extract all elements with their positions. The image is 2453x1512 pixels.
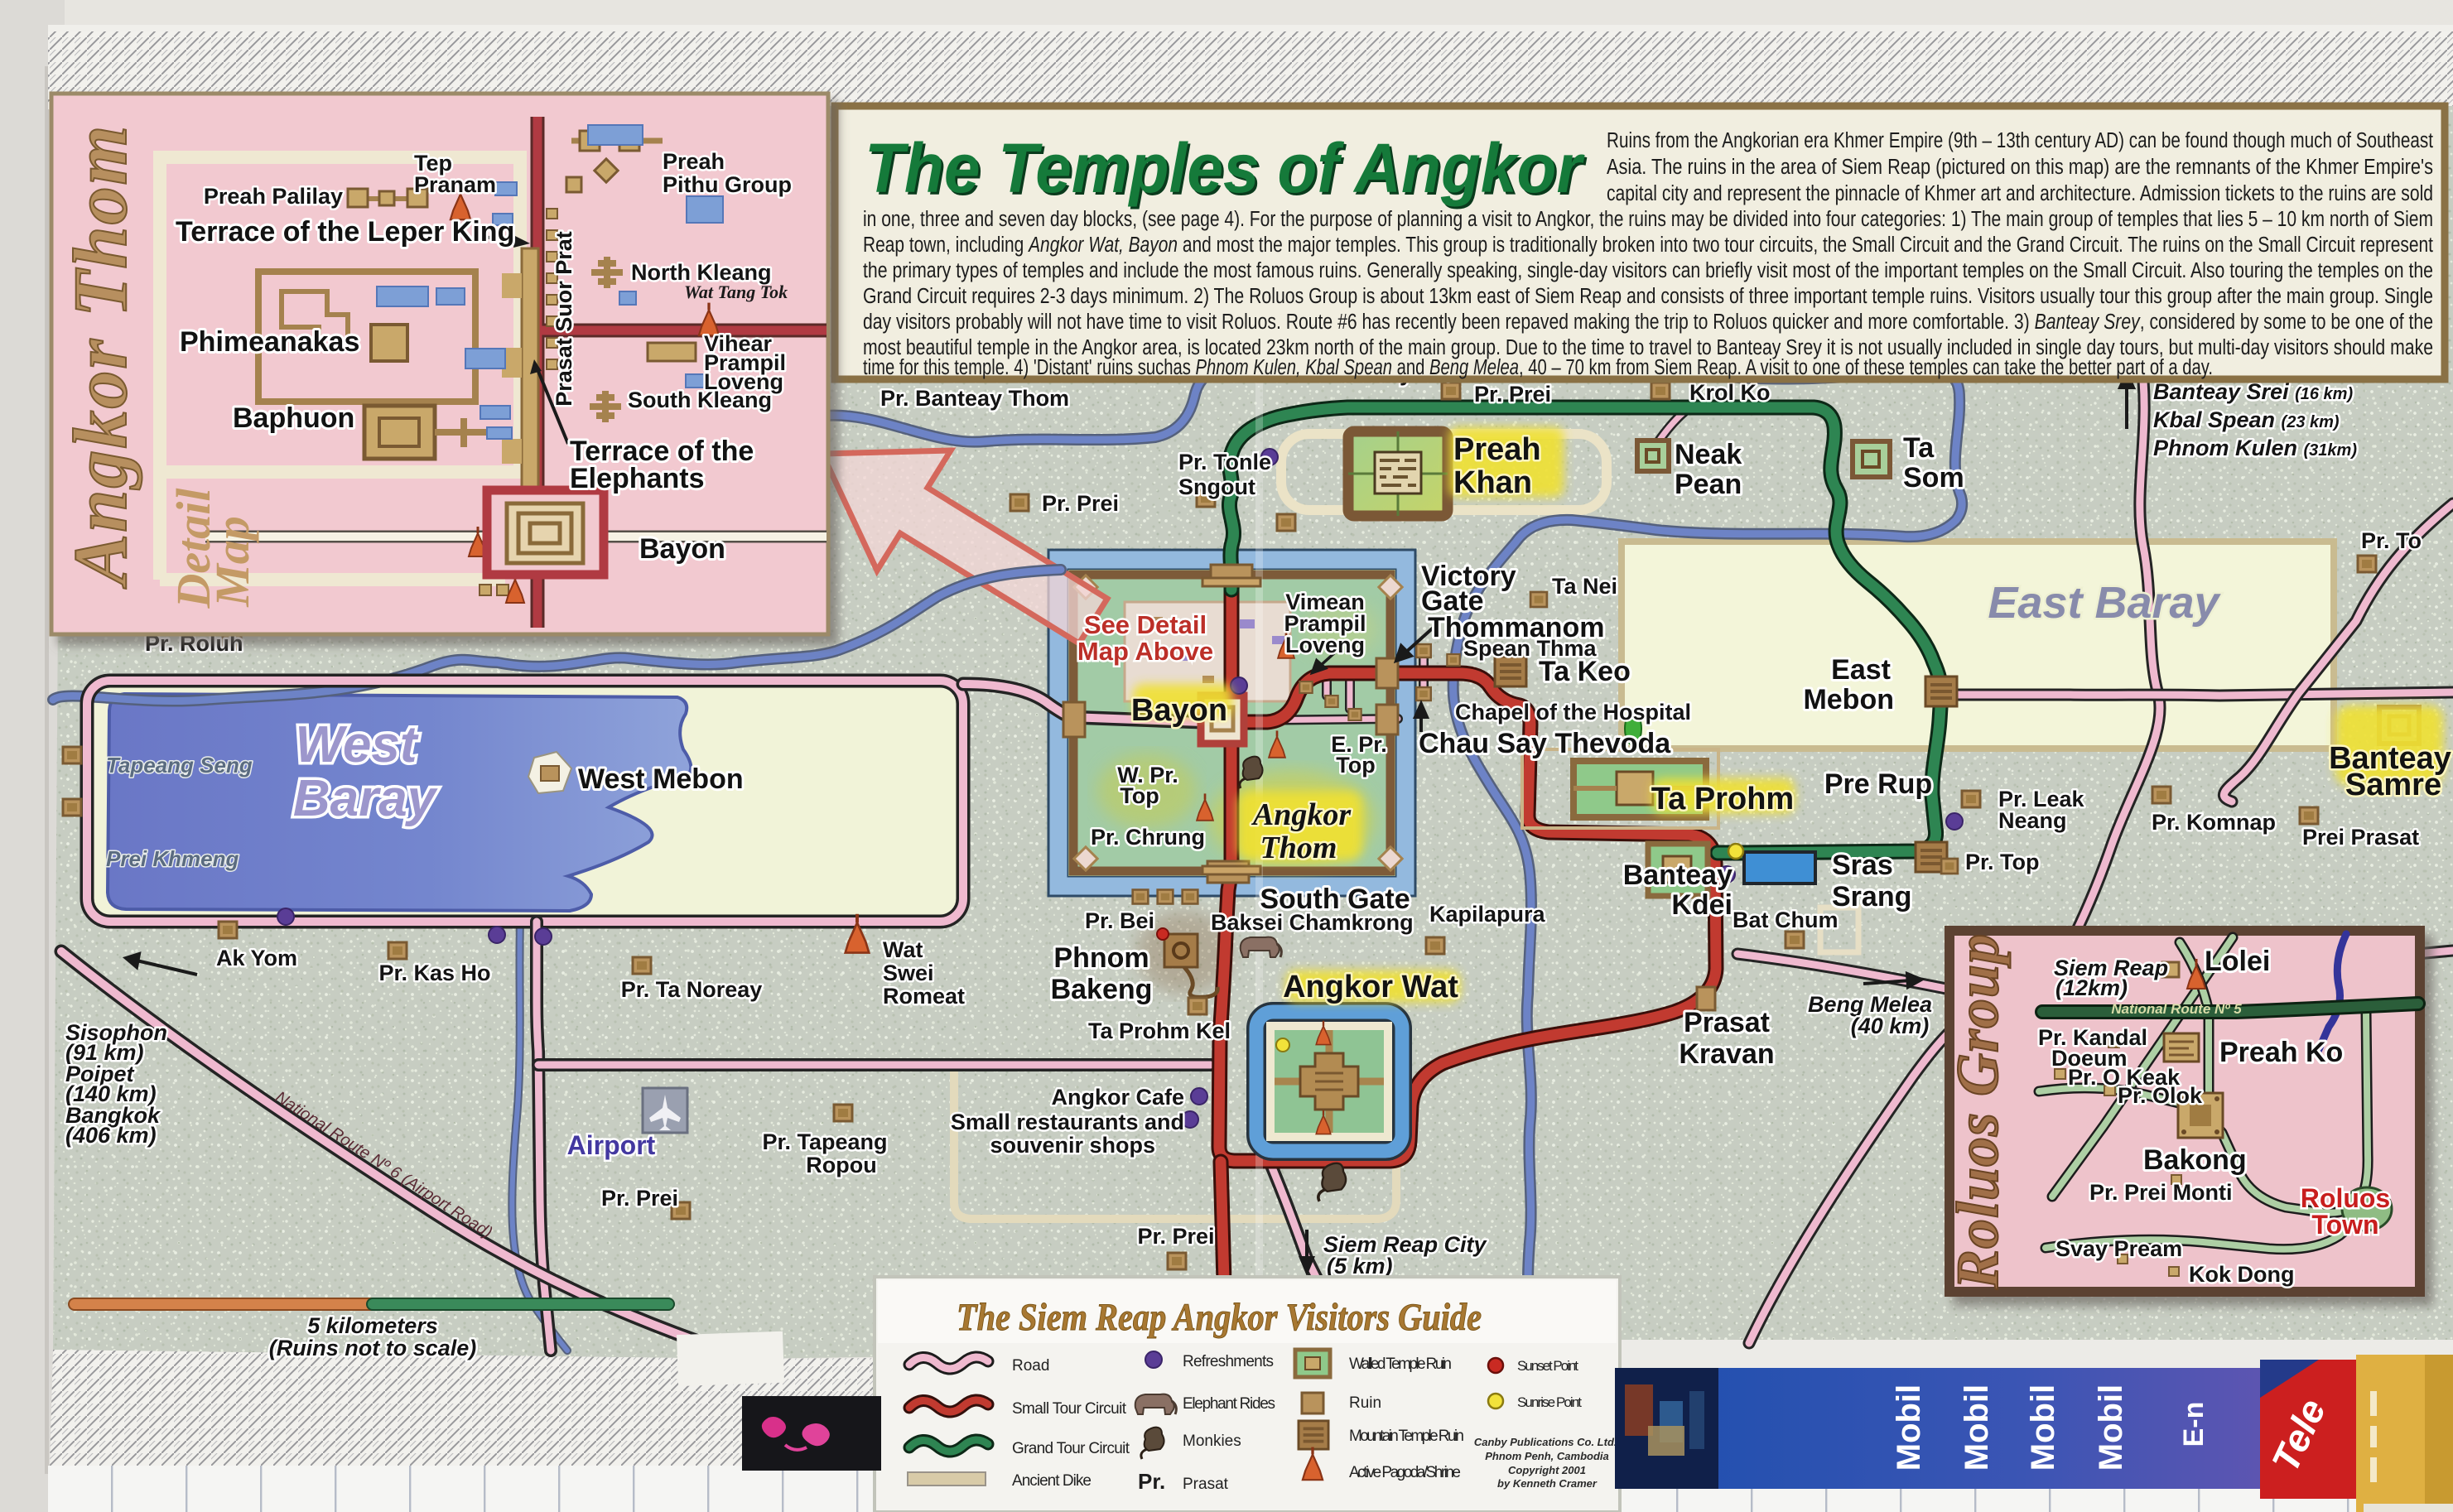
svg-text:Ropou: Ropou — [806, 1153, 876, 1177]
svg-text:Ta Prohm: Ta Prohm — [1651, 782, 1794, 816]
svg-text:Ta Nei: Ta Nei — [1552, 574, 1617, 599]
svg-text:Roluos: Roluos — [2301, 1183, 2390, 1213]
svg-text:Pr. Prei: Pr. Prei — [1474, 382, 1551, 407]
svg-text:East: East — [1831, 654, 1891, 686]
svg-text:Sunrise Point: Sunrise Point — [1517, 1394, 1582, 1410]
svg-text:Bakong: Bakong — [2143, 1144, 2247, 1176]
svg-text:Active Pagoda/Shrine: Active Pagoda/Shrine — [1349, 1464, 1461, 1481]
svg-text:Preah Palilay: Preah Palilay — [204, 184, 343, 209]
svg-text:Kapilapura: Kapilapura — [1429, 902, 1546, 927]
svg-text:East Baray: East Baray — [1988, 578, 2221, 628]
svg-text:Pr. Tonle: Pr. Tonle — [1178, 450, 1271, 474]
svg-text:Bakeng: Bakeng — [1051, 974, 1153, 1005]
svg-text:Small Tour Circuit: Small Tour Circuit — [1012, 1400, 1127, 1418]
svg-text:Town: Town — [2311, 1210, 2378, 1240]
svg-text:Asia. The ruins in the area of: Asia. The ruins in the area of Siem Reap… — [1607, 156, 2433, 179]
svg-text:Preah: Preah — [1453, 432, 1541, 467]
svg-text:Baphuon: Baphuon — [233, 402, 354, 434]
svg-text:West: West — [295, 716, 418, 773]
svg-text:Pr. Bei: Pr. Bei — [1085, 908, 1154, 933]
svg-text:Elephants: Elephants — [570, 463, 704, 494]
svg-text:Pr. Kas Ho: Pr. Kas Ho — [378, 961, 490, 985]
svg-text:Mobil: Mobil — [2025, 1384, 2061, 1471]
svg-text:Wat Tang Tok: Wat Tang Tok — [684, 282, 788, 302]
svg-text:Mebon: Mebon — [1803, 684, 1894, 715]
svg-text:Khan: Khan — [1453, 465, 1532, 500]
svg-text:National Route Nº 5: National Route Nº 5 — [2111, 1001, 2242, 1017]
svg-text:(Ruins not to scale): (Ruins not to scale) — [269, 1336, 477, 1360]
svg-text:(5 km): (5 km) — [1327, 1254, 1393, 1278]
svg-text:Map Above: Map Above — [1077, 637, 1213, 666]
svg-text:Neak: Neak — [1675, 439, 1742, 470]
svg-text:Wat: Wat — [883, 937, 923, 962]
svg-text:Thom: Thom — [1260, 831, 1337, 865]
svg-text:Bat Chum: Bat Chum — [1733, 908, 1839, 932]
svg-text:Small restaurants and: Small restaurants and — [951, 1110, 1184, 1134]
svg-text:Pr.: Pr. — [1138, 1469, 1165, 1494]
svg-text:Som: Som — [1903, 462, 1964, 494]
svg-text:Pr. Olok: Pr. Olok — [2118, 1083, 2203, 1108]
svg-text:Prasat Suor Prat: Prasat Suor Prat — [552, 231, 576, 407]
svg-text:(406 km): (406 km) — [65, 1123, 157, 1148]
svg-text:The Siem Reap Angkor Visitors: The Siem Reap Angkor Visitors Guide — [957, 1296, 1482, 1339]
svg-text:Roluos Group: Roluos Group — [1945, 933, 2011, 1290]
svg-text:in one, three and seven day bl: in one, three and seven day blocks, (see… — [863, 208, 2433, 231]
svg-text:Angkor Cafe: Angkor Cafe — [1051, 1085, 1184, 1110]
svg-text:Pre Rup: Pre Rup — [1824, 768, 1932, 800]
svg-text:Neang: Neang — [1998, 808, 2067, 833]
svg-text:Sngout: Sngout — [1178, 474, 1255, 499]
svg-text:Airport: Airport — [567, 1130, 656, 1160]
svg-text:Prasat: Prasat — [1183, 1476, 1229, 1493]
svg-text:Preah: Preah — [663, 149, 725, 174]
svg-text:Krol Ko: Krol Ko — [1689, 380, 1771, 405]
svg-text:Angkor Wat: Angkor Wat — [1283, 970, 1458, 1004]
svg-text:See Detail: See Detail — [1084, 610, 1207, 639]
svg-text:Mobil: Mobil — [1891, 1384, 1927, 1471]
svg-text:West Mebon: West Mebon — [578, 763, 744, 795]
svg-text:Pr. To: Pr. To — [2361, 528, 2422, 553]
svg-text:Pr. Prei: Pr. Prei — [1042, 491, 1119, 516]
svg-text:Terrace of the Leper King: Terrace of the Leper King — [176, 216, 514, 248]
svg-text:the primary types of temples a: the primary types of temples and include… — [863, 259, 2433, 282]
svg-text:Phnom: Phnom — [1053, 942, 1149, 974]
svg-text:Sras: Sras — [1832, 850, 1893, 881]
svg-text:(12km): (12km) — [2055, 975, 2128, 1000]
svg-text:Reap town, including Angkor Wa: Reap town, including Angkor Wat, Bayon a… — [863, 234, 2433, 257]
svg-text:Refreshments: Refreshments — [1183, 1353, 1274, 1370]
svg-text:Pithu Group: Pithu Group — [663, 172, 792, 197]
svg-text:Pr. Komnap: Pr. Komnap — [2152, 810, 2276, 835]
svg-text:Phnom Penh, Cambodia: Phnom Penh, Cambodia — [1485, 1450, 1609, 1462]
svg-text:Mobil: Mobil — [1959, 1384, 1995, 1471]
svg-text:Tapeang Seng: Tapeang Seng — [106, 753, 253, 778]
svg-text:Pr. Prei: Pr. Prei — [1137, 1224, 1214, 1249]
svg-text:Ta Prohm Kel: Ta Prohm Kel — [1088, 1018, 1231, 1043]
svg-text:(40 km): (40 km) — [1851, 1014, 1930, 1038]
svg-text:Prei Khmeng: Prei Khmeng — [106, 846, 239, 871]
svg-text:Pr. Chrung: Pr. Chrung — [1091, 825, 1205, 850]
svg-text:Ak Yom: Ak Yom — [216, 946, 297, 970]
svg-text:Copyright 2001: Copyright 2001 — [1508, 1464, 1586, 1476]
svg-text:Road: Road — [1012, 1357, 1049, 1375]
svg-text:Pr. Top: Pr. Top — [1965, 850, 2040, 874]
svg-text:Kravan: Kravan — [1679, 1038, 1774, 1070]
svg-text:Pranam: Pranam — [414, 172, 496, 197]
svg-text:Ta: Ta — [1903, 432, 1935, 464]
svg-text:Pr. Prei: Pr. Prei — [601, 1186, 678, 1211]
svg-text:Sunset Point: Sunset Point — [1517, 1358, 1578, 1374]
svg-text:E-n: E-n — [2178, 1402, 2210, 1447]
svg-text:Elephant Rides: Elephant Rides — [1183, 1395, 1275, 1413]
svg-text:day visitors probably will not: day visitors probably will not have time… — [863, 311, 2433, 334]
svg-text:Pr. Tapeang: Pr. Tapeang — [762, 1129, 887, 1154]
svg-text:Kdei: Kdei — [1671, 889, 1733, 921]
svg-text:Samre: Samre — [2345, 768, 2441, 802]
svg-text:Baray: Baray — [293, 770, 439, 827]
svg-text:Angkor Thom: Angkor Thom — [58, 124, 142, 589]
svg-text:Ta Keo: Ta Keo — [1539, 656, 1631, 687]
svg-text:Loveng: Loveng — [1285, 633, 1365, 657]
svg-text:Chau Say Thevoda: Chau Say Thevoda — [1419, 728, 1671, 759]
svg-text:Preah Ko: Preah Ko — [2219, 1037, 2343, 1068]
svg-text:Prei Prasat: Prei Prasat — [2302, 825, 2419, 850]
svg-text:Prasat: Prasat — [1684, 1007, 1770, 1038]
svg-text:Swei: Swei — [883, 961, 934, 985]
svg-text:Monkies: Monkies — [1183, 1433, 1241, 1450]
svg-text:Kok Dong: Kok Dong — [2189, 1262, 2295, 1287]
svg-text:Bayon: Bayon — [1131, 693, 1227, 728]
svg-text:5 kilometers: 5 kilometers — [307, 1313, 438, 1338]
svg-text:Pr. Banteay Thom: Pr. Banteay Thom — [880, 386, 1069, 411]
svg-text:Ruins from the Angkorian era K: Ruins from the Angkorian era Khmer Empir… — [1607, 129, 2433, 152]
svg-text:Angkor: Angkor — [1251, 797, 1352, 832]
svg-text:Chapel of the Hospital: Chapel of the Hospital — [1455, 700, 1691, 725]
svg-text:Top: Top — [1120, 783, 1159, 808]
svg-text:Bayon: Bayon — [639, 533, 725, 565]
svg-text:Baksei Chamkrong: Baksei Chamkrong — [1211, 910, 1414, 935]
svg-text:Top: Top — [1336, 753, 1375, 778]
svg-text:by Kenneth Cramer: by Kenneth Cramer — [1497, 1477, 1598, 1490]
svg-text:Walled Temple Ruin: Walled Temple Ruin — [1349, 1356, 1452, 1373]
svg-text:Svay Pream: Svay Pream — [2055, 1236, 2182, 1261]
svg-text:Ruin: Ruin — [1349, 1394, 1381, 1412]
svg-text:capital city and represent the: capital city and represent the pinnacle … — [1607, 182, 2433, 205]
svg-text:Pr. Ta Noreay: Pr. Ta Noreay — [621, 977, 763, 1002]
svg-text:Pr. Prei Monti: Pr. Prei Monti — [2089, 1180, 2233, 1205]
svg-text:Ancient Dike: Ancient Dike — [1012, 1472, 1092, 1490]
svg-text:South Kleang: South Kleang — [628, 388, 772, 412]
svg-text:The Temples of Angkor: The Temples of Angkor — [865, 129, 1585, 207]
svg-text:souvenir shops: souvenir shops — [990, 1133, 1155, 1158]
svg-text:Pean: Pean — [1675, 469, 1742, 500]
svg-text:Banteay: Banteay — [1623, 860, 1733, 891]
svg-text:Mountain Temple Ruin: Mountain Temple Ruin — [1349, 1428, 1464, 1445]
svg-text:Grand Circuit requires 2-3 day: Grand Circuit requires 2-3 days minimum.… — [863, 285, 2433, 308]
svg-text:Lolei: Lolei — [2205, 946, 2270, 977]
svg-text:Map: Map — [205, 516, 259, 608]
svg-text:Srang: Srang — [1832, 881, 1911, 912]
svg-text:Romeat: Romeat — [883, 984, 965, 1009]
svg-text:time for this temple. 4) 'Dist: time for this temple. 4) 'Distant' ruins… — [863, 356, 2213, 379]
svg-text:Canby Publications Co. Ltd.,: Canby Publications Co. Ltd., — [1474, 1436, 1620, 1448]
svg-text:Grand Tour Circuit: Grand Tour Circuit — [1012, 1440, 1130, 1457]
svg-text:Phimeanakas: Phimeanakas — [180, 326, 359, 358]
svg-text:Mobil: Mobil — [2093, 1384, 2129, 1471]
